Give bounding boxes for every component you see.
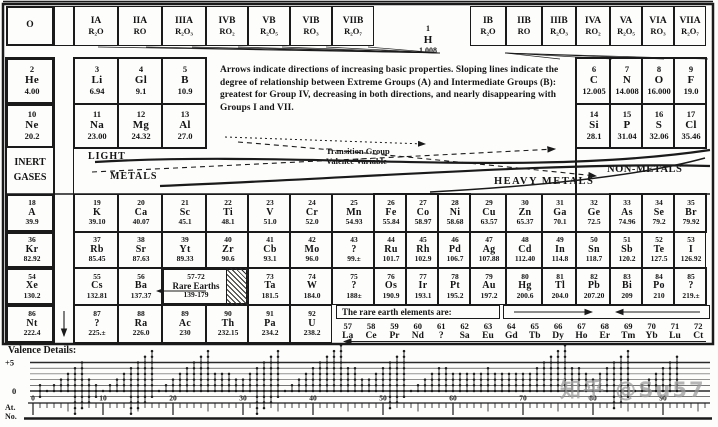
element-cell-K: 19K39.10: [74, 194, 118, 232]
group-header-VIA: VIARO₃: [642, 6, 674, 46]
svg-text:0: 0: [12, 386, 16, 396]
element-cell-Sc: 21Sc45.1: [162, 194, 206, 232]
element-cell-W: 74W184.0: [290, 268, 332, 305]
rare-earth-item-unknown-61: 61?: [430, 321, 453, 342]
element-cell-Tl: 81Tl204.0: [542, 268, 576, 305]
rare-earth-item-Ho: 67Ho: [570, 321, 593, 342]
rare-earth-item-La: 57La: [336, 321, 359, 342]
spacer-column: [54, 58, 74, 343]
rare-earth-item-Ct: 72Ct: [687, 321, 710, 342]
svg-text:70: 70: [519, 394, 527, 403]
element-cell-Cr: 24Cr52.0: [290, 194, 332, 232]
element-cell-Ga: 31Ga70.1: [542, 194, 576, 232]
group-header-spacer: [54, 6, 74, 46]
element-cell-O: 8O16.000: [642, 58, 674, 104]
periodic-table-figure: OIAR₂OIIAROIIIAR₂O₃IVBRO₂VBR₂O₅VIBRO₃VII…: [0, 0, 718, 427]
element-cell-N: 7N14.008: [610, 58, 642, 104]
inert-gases-label: INERT GASES: [10, 155, 50, 185]
element-cell-Ru: 44Ru101.7: [374, 232, 406, 268]
element-cell-Fe: 26Fe55.84: [374, 194, 406, 232]
group-header-VIB: VIBRO₃: [290, 6, 332, 46]
rare-earth-arrows-box: [503, 305, 710, 319]
element-cell-Cu: 29Cu63.57: [470, 194, 506, 232]
rare-earth-item-Nd: 60Nd: [406, 321, 429, 342]
element-cell-He: 2He4.00: [6, 58, 54, 104]
element-cell-Co: 27Co58.97: [406, 194, 438, 232]
group-header-IIB: IIBRO: [506, 6, 542, 46]
element-cell-Ag: 47Ag107.88: [470, 232, 506, 268]
transition-group-label: Transition Group Valence Variable: [326, 146, 416, 166]
element-cell-Ca: 20Ca40.07: [118, 194, 162, 232]
element-cell-Sb: 51Sb120.2: [610, 232, 642, 268]
element-cell-P: 15P31.04: [610, 104, 642, 148]
element-cell-Hg: 80Hg200.6: [506, 268, 542, 305]
element-cell-Po: 84Po210: [642, 268, 674, 305]
element-cell-Ir: 77Ir193.1: [406, 268, 438, 305]
hydrogen-number: 1: [400, 24, 456, 34]
group-header-IVA: IVARO₂: [576, 6, 610, 46]
group-header-VA: VAR₂O₅: [610, 6, 642, 46]
rare-earth-item-Eu: 63Eu: [476, 321, 499, 342]
element-cell-B: 5B10.9: [162, 58, 206, 104]
group-header-O: O: [6, 6, 54, 46]
element-cell-unknown-85: 85?219.±: [674, 268, 706, 305]
element-cell-Te: 52Te127.5: [642, 232, 674, 268]
svg-text:30: 30: [239, 394, 247, 403]
element-cell-Pa: 91Pa234.2: [248, 305, 290, 343]
svg-text:+5: +5: [5, 358, 14, 368]
element-cell-Na: 11Na23.00: [74, 104, 118, 148]
element-cell-Sr: 38Sr87.63: [118, 232, 162, 268]
element-cell-Ra: 88Ra226.0: [118, 305, 162, 343]
element-cell-Yt: 39Yt89.33: [162, 232, 206, 268]
svg-text:50: 50: [379, 394, 387, 403]
element-cell-Rb: 37Rb85.45: [74, 232, 118, 268]
element-cell-Zn: 30Zn65.37: [506, 194, 542, 232]
element-cell-Mo: 42Mo96.0: [290, 232, 332, 268]
element-cell-Sn: 50Sn118.7: [576, 232, 610, 268]
element-cell-U: 92U238.2: [290, 305, 332, 343]
group-header-IA: IAR₂O: [74, 6, 118, 46]
element-cell-As: 33As74.96: [610, 194, 642, 232]
svg-text:At.: At.: [5, 403, 15, 412]
element-cell-Pd: 46Pd106.7: [438, 232, 470, 268]
element-cell-Li: 3Li6.94: [74, 58, 118, 104]
element-cell-Br: 35Br79.92: [674, 194, 706, 232]
element-cell-I: 53I126.92: [674, 232, 706, 268]
group-header-IIA: IIARO: [118, 6, 162, 46]
rare-earth-item-Dy: 66Dy: [546, 321, 569, 342]
element-cell-Xe: 54Xe130.2: [6, 268, 54, 305]
element-cell-Th: 90Th232.15: [206, 305, 248, 343]
element-cell-Os: 76Os190.9: [374, 268, 406, 305]
element-cell-Se: 34Se79.2: [642, 194, 674, 232]
element-cell-Ac: 89Ac230: [162, 305, 206, 343]
svg-text:10: 10: [99, 394, 107, 403]
element-cell-In: 49In114.8: [542, 232, 576, 268]
group-header-IB: IBR₂O: [470, 6, 506, 46]
element-cell-Mg: 12Mg24.32: [118, 104, 162, 148]
element-cell-F: 9F19.0: [674, 58, 706, 104]
note-text: Arrows indicate directions of increasing…: [220, 64, 568, 114]
element-cell-unknown-75: 75?188±: [332, 268, 374, 305]
rare-earth-item-Pr: 59Pr: [383, 321, 406, 342]
svg-text:60: 60: [449, 394, 457, 403]
rare-earth-item-Tb: 65Tb: [523, 321, 546, 342]
element-cell-Si: 14Si28.1: [576, 104, 610, 148]
rare-earth-item-Lu: 71Lu: [663, 321, 686, 342]
hydrogen-symbol: H: [400, 34, 456, 46]
element-cell-Pt: 78Pt195.2: [438, 268, 470, 305]
group-header-IIIA: IIIAR₂O₃: [162, 6, 206, 46]
element-cell-A: 18A39.9: [6, 194, 54, 232]
svg-text:40: 40: [309, 394, 317, 403]
element-cell-Al: 13Al27.0: [162, 104, 206, 148]
svg-text:20: 20: [169, 394, 177, 403]
hydrogen-weight: 1.008: [400, 46, 456, 56]
group-header-IVB: IVBRO₂: [206, 6, 248, 46]
non-metals-label: NON-METALS: [607, 164, 682, 175]
element-cell-Zr: 40Zr90.6: [206, 232, 248, 268]
element-cell-Mn: 25Mn54.93: [332, 194, 374, 232]
element-cell-Ne: 10Ne20.2: [6, 104, 54, 148]
group-header-VB: VBR₂O₅: [248, 6, 290, 46]
element-cell-S: 16S32.06: [642, 104, 674, 148]
rare-earth-item-Tm: 69Tm: [617, 321, 640, 342]
heavy-metals-label: HEAVY METALS: [494, 176, 594, 187]
watermark: 知乎 @Su57: [560, 374, 706, 404]
element-cell-Cd: 48Cd112.40: [506, 232, 542, 268]
group-header-IIIB: IIIBR₂O₃: [542, 6, 576, 46]
svg-text:0: 0: [31, 394, 35, 403]
rare-earth-item-Ce: 58Ce: [359, 321, 382, 342]
rare-earth-item-Er: 68Er: [593, 321, 616, 342]
element-cell-Bi: 83Bi209: [610, 268, 642, 305]
element-cell-unknown-87: 87?225.±: [74, 305, 118, 343]
element-cell-Ta: 73Ta181.5: [248, 268, 290, 305]
element-cell-Ni: 28Ni58.68: [438, 194, 470, 232]
svg-text:No.: No.: [5, 412, 17, 421]
element-cell-Pb: 82Pb207.20: [576, 268, 610, 305]
group-header-VIIA: VIIAR₂O₇: [674, 6, 706, 46]
element-cell-Cb: 41Cb93.1: [248, 232, 290, 268]
element-cell-Cl: 17Cl35.46: [674, 104, 706, 148]
element-cell-Kr: 36Kr82.92: [6, 232, 54, 268]
group-header-VIIB: VIIBR₂O₇: [332, 6, 374, 46]
element-cell-V: 23V51.0: [248, 194, 290, 232]
element-cell-Au: 79Au197.2: [470, 268, 506, 305]
rare-earth-item-Sa: 62Sa: [453, 321, 476, 342]
element-cell-Rh: 45Rh102.9: [406, 232, 438, 268]
element-cell-Ge: 32Ge72.5: [576, 194, 610, 232]
element-cell-Ti: 22Ti48.1: [206, 194, 248, 232]
metals-label: METALS: [110, 171, 158, 182]
element-cell-Nt: 86Nt222.4: [6, 305, 54, 343]
element-cell-C: 6C12.005: [576, 58, 610, 104]
element-cell-unknown-43: 43?99.±: [332, 232, 374, 268]
valence-details-title: Valence Details:: [8, 345, 76, 356]
element-cell-Ba: 56Ba137.37: [118, 268, 162, 305]
element-cell-Cs: 55Cs132.81: [74, 268, 118, 305]
rare-earth-item-Yb: 70Yb: [640, 321, 663, 342]
rare-earth-item-Gd: 64Gd: [500, 321, 523, 342]
hydrogen-cell: 1 H 1.008: [400, 24, 456, 55]
rare-earths-hatch: [226, 268, 248, 305]
rare-earth-title: The rare earth elements are:: [336, 305, 500, 319]
light-label: LIGHT: [88, 151, 126, 162]
element-cell-Gl: 4Gl9.1: [118, 58, 162, 104]
